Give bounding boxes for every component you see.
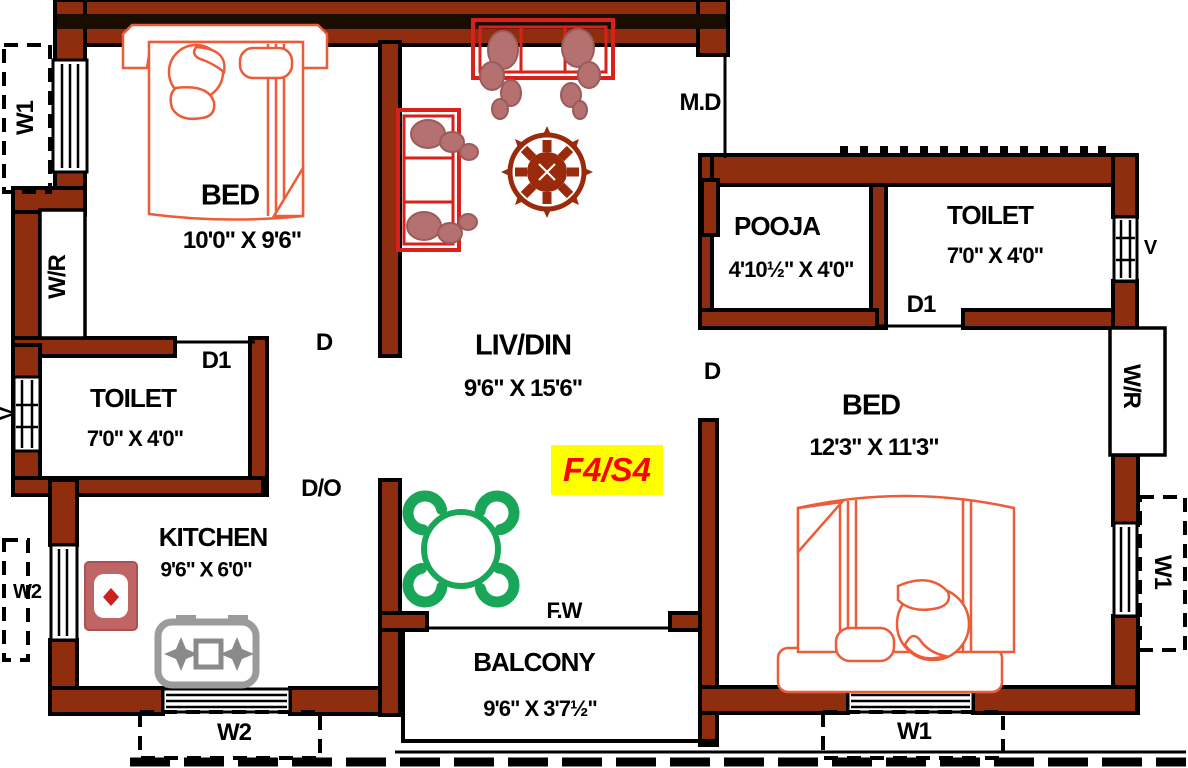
window1-bottom-label: W1 xyxy=(897,720,931,744)
bed2-pillow-blob xyxy=(898,580,949,610)
toilet-top-name: TOILET xyxy=(947,202,1033,228)
wardrobe-left-label: W/R xyxy=(46,255,70,299)
vent-v-right-icon xyxy=(1114,217,1137,281)
wall-toilett-bottom xyxy=(963,310,1137,328)
door1-toilet-top-label: D1 xyxy=(907,293,936,317)
unit-badge: F4/S4 xyxy=(551,445,663,495)
balcony-dims: 9'6" X 3'7½" xyxy=(483,698,597,720)
wall-pooja-toilet-divider xyxy=(871,185,886,328)
window1-topleft-label: W1 xyxy=(14,101,38,135)
window-w1-topleft-icon xyxy=(53,60,87,172)
bed1-name: BED xyxy=(201,182,259,211)
window2-bottom-label: W2 xyxy=(217,721,251,745)
wall-balcony-stub-left xyxy=(380,613,427,630)
window2-left-label: W2 xyxy=(13,582,41,602)
bed2-dims: 12'3" X 11'3" xyxy=(809,436,938,460)
wall-left-mid xyxy=(13,212,40,345)
door1-toilet-left-label: D1 xyxy=(202,349,231,373)
bed1-dims: 10'0" X 9'6" xyxy=(183,229,301,253)
door-opening-kitchen-label: D/O xyxy=(301,477,341,501)
bed1-pillow-blob xyxy=(171,87,215,119)
ceiling-fan-icon xyxy=(501,126,593,218)
vent-left-label: V xyxy=(0,408,18,420)
wall-right-upper xyxy=(1113,155,1137,217)
pooja-name: POOJA xyxy=(734,213,820,239)
toilet-left-dims: 7'0" X 4'0" xyxy=(87,428,183,450)
livdin-dims: 9'6" X 15'6" xyxy=(464,377,582,401)
wall-toiletl-right xyxy=(250,338,267,495)
wall-rightwing-top xyxy=(700,155,1137,185)
plants-left-sofa xyxy=(407,120,478,243)
window1-right-label: W1 xyxy=(1150,555,1174,589)
wall-pooja-bottom xyxy=(700,310,877,328)
balcony-name: BALCONY xyxy=(473,649,595,675)
door-bed2-label: D xyxy=(704,360,720,384)
balcony-outline xyxy=(401,628,715,743)
wall-right-mid xyxy=(1113,455,1138,525)
bed2-name: BED xyxy=(842,392,900,421)
wall-right-below-vent xyxy=(1113,281,1137,328)
wall-pooja-notch xyxy=(702,180,718,235)
pooja-dims: 4'10½" X 4'0" xyxy=(729,259,854,281)
dining-table xyxy=(408,496,514,602)
window-w2-left-icon xyxy=(51,545,77,640)
toilet-top-dims: 7'0" X 4'0" xyxy=(947,245,1043,267)
french-window-label: F.W xyxy=(547,600,582,622)
bed2-furniture xyxy=(778,496,1014,692)
wall-left-upper xyxy=(55,0,85,62)
vent-right-label: V xyxy=(1144,238,1156,258)
door-bed1-label: D xyxy=(316,331,332,355)
wall-kitchen-left-lower xyxy=(50,640,77,690)
livdin-name: LIV/DIN xyxy=(475,332,571,361)
gas-stove-icon xyxy=(158,615,256,685)
kitchen-sink-icon xyxy=(85,562,137,630)
kitchen-name: KITCHEN xyxy=(159,524,268,550)
wall-kitchen-left-upper xyxy=(50,480,77,545)
kitchen-dims: 9'6" X 6'0" xyxy=(160,560,251,581)
window-w1-right-icon xyxy=(1114,523,1137,616)
wardrobe-right-label: W/R xyxy=(1119,364,1143,408)
main-door-label: M.D xyxy=(680,91,721,115)
toilet-left-name: TOILET xyxy=(90,385,176,411)
bed2-pillow-rect xyxy=(836,628,894,661)
window-w2-bottom-icon xyxy=(163,689,290,712)
wall-kitchen-balcony-divider xyxy=(380,480,400,715)
floor-plan: BED 10'0" X 9'6" LIV/DIN 9'6" X 15'6" PO… xyxy=(0,0,1188,768)
bed1-pillow-rect xyxy=(240,48,292,78)
